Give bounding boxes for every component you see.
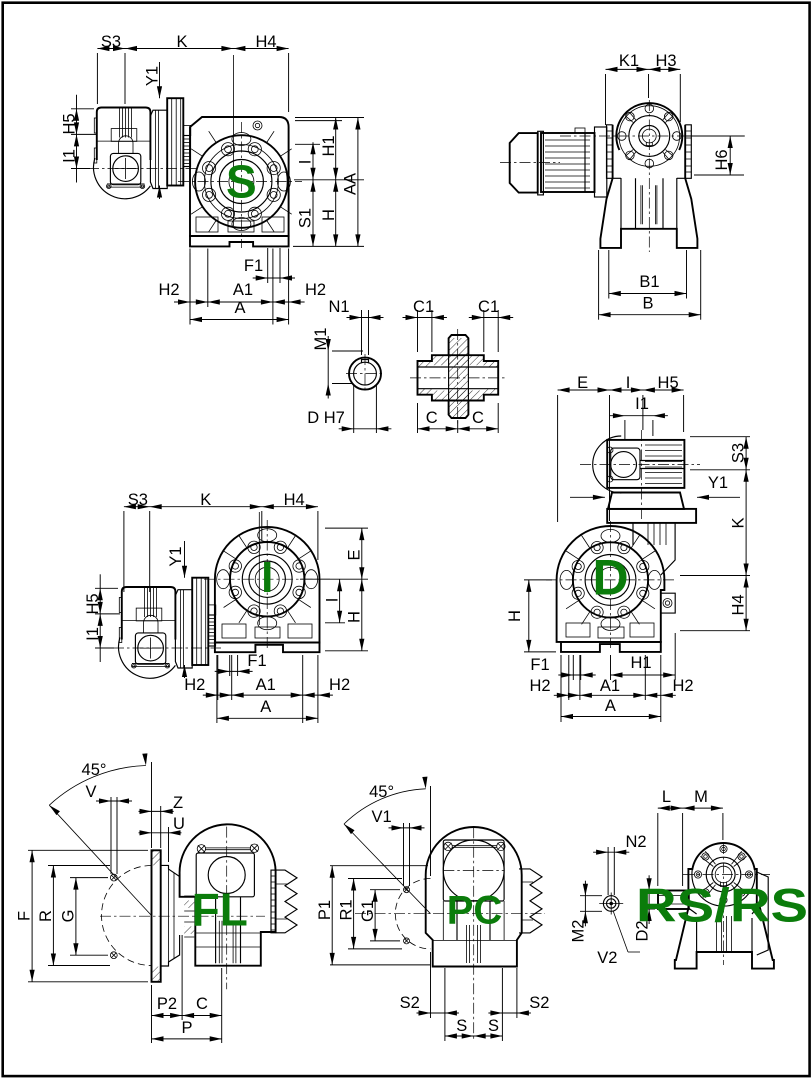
svg-text:Y1: Y1 [708,474,728,492]
svg-text:V: V [85,783,96,801]
svg-text:K: K [176,33,187,51]
svg-text:H5: H5 [61,113,79,134]
svg-text:S3: S3 [101,33,121,51]
svg-text:V1: V1 [372,808,392,826]
svg-text:R: R [37,910,55,922]
svg-text:A1: A1 [256,676,276,694]
svg-text:H2: H2 [329,676,350,694]
svg-text:H2: H2 [529,677,550,695]
svg-text:45°: 45° [369,783,394,801]
svg-text:M2: M2 [570,920,588,943]
svg-text:H3: H3 [655,52,676,70]
svg-text:I1: I1 [61,149,79,163]
svg-text:H1: H1 [320,135,338,156]
svg-text:A1: A1 [600,677,620,695]
svg-text:N2: N2 [625,833,646,851]
svg-text:I: I [626,374,631,392]
svg-text:G1: G1 [359,900,377,922]
svg-text:B1: B1 [639,273,659,291]
svg-text:A: A [605,697,616,715]
svg-text:S3: S3 [128,491,148,509]
svg-text:F1: F1 [530,656,549,674]
svg-text:P2: P2 [157,995,177,1013]
svg-text:P1: P1 [316,900,334,920]
svg-text:Y1: Y1 [167,546,185,566]
svg-text:C: C [472,409,484,427]
svg-text:45°: 45° [82,761,107,779]
svg-text:E: E [346,549,364,560]
svg-text:P: P [181,1019,192,1037]
svg-text:I: I [261,553,273,602]
svg-text:C: C [426,409,438,427]
svg-text:I1: I1 [84,627,102,641]
svg-text:M1: M1 [312,328,330,351]
svg-text:H: H [320,209,338,221]
svg-text:AA: AA [342,173,360,195]
svg-text:B: B [642,295,653,313]
svg-text:H4: H4 [255,33,276,51]
svg-text:K: K [730,517,748,528]
svg-text:S2: S2 [400,994,420,1012]
svg-text:PC: PC [447,888,503,932]
svg-text:N1: N1 [328,298,349,316]
svg-text:H5: H5 [84,593,102,614]
svg-text:H: H [346,611,364,623]
svg-text:F1: F1 [244,257,263,275]
svg-text:C: C [196,995,208,1013]
svg-text:RS/RS: RS/RS [636,879,808,932]
svg-text:S: S [456,1017,467,1035]
svg-text:R1: R1 [338,899,356,920]
svg-text:A: A [260,698,271,716]
svg-text:D: D [592,549,628,605]
svg-text:FL: FL [192,884,248,936]
svg-text:I1: I1 [635,395,649,413]
svg-text:H2: H2 [672,677,693,695]
svg-text:G: G [60,910,78,923]
svg-text:C1: C1 [413,298,434,316]
svg-text:A: A [234,299,245,317]
svg-text:S2: S2 [529,994,549,1012]
svg-text:H: H [506,610,524,622]
svg-text:U: U [173,815,185,833]
svg-text:H1: H1 [630,654,651,672]
svg-text:H4: H4 [730,594,748,615]
svg-text:H6: H6 [713,149,731,170]
svg-text:H2: H2 [158,281,179,299]
svg-text:I: I [324,598,342,603]
svg-text:L: L [662,788,671,806]
svg-text:V2: V2 [597,949,617,967]
svg-text:A1: A1 [233,281,253,299]
svg-text:E: E [577,374,588,392]
svg-text:H5: H5 [658,374,679,392]
svg-text:K1: K1 [619,52,639,70]
svg-text:K: K [200,491,211,509]
svg-text:S: S [226,155,257,207]
svg-text:F1: F1 [247,652,266,670]
svg-text:H2: H2 [305,281,326,299]
svg-text:S: S [488,1017,499,1035]
svg-text:H2: H2 [184,676,205,694]
svg-text:I: I [297,160,315,165]
svg-text:H4: H4 [284,491,305,509]
svg-text:C1: C1 [478,298,499,316]
svg-text:S3: S3 [730,443,748,463]
svg-text:S1: S1 [297,208,315,228]
svg-text:M: M [694,788,708,806]
svg-text:D H7: D H7 [307,409,345,427]
svg-text:Y1: Y1 [144,66,162,86]
svg-text:F: F [16,911,34,921]
svg-text:Z: Z [173,794,183,812]
